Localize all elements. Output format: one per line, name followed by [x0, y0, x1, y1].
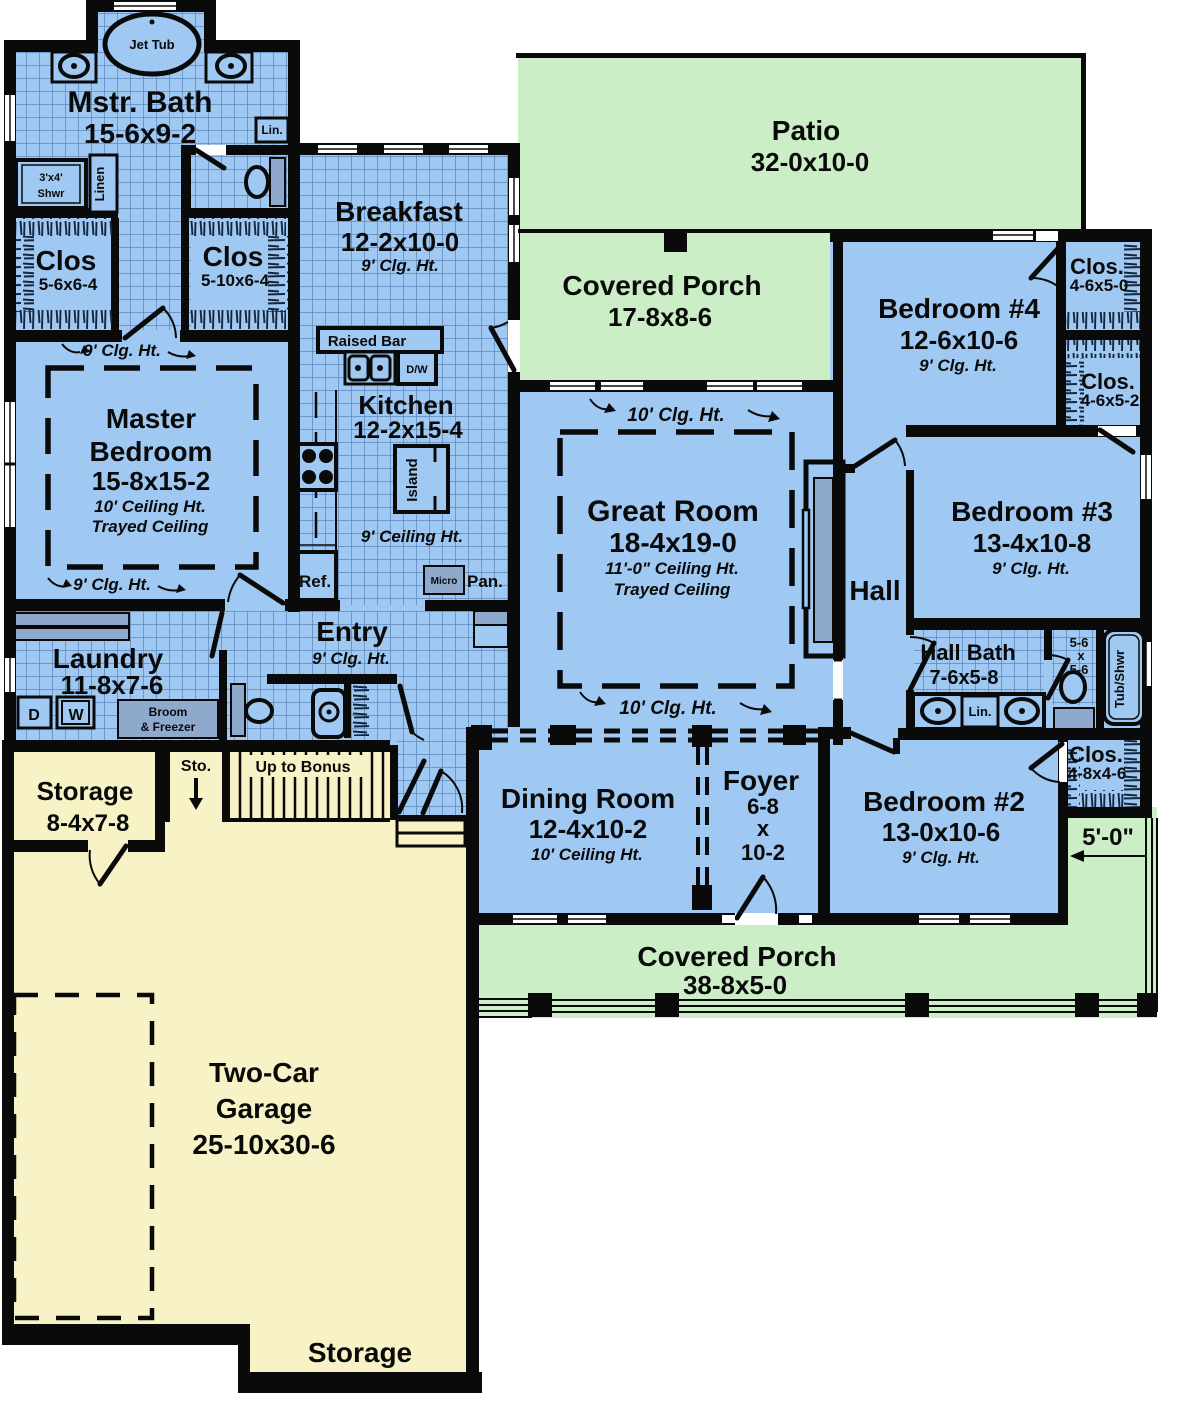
svg-text:D: D — [28, 707, 40, 724]
svg-text:11-8x7-6: 11-8x7-6 — [61, 670, 164, 700]
svg-text:Covered Porch: Covered Porch — [637, 941, 836, 972]
svg-text:Trayed Ceiling: Trayed Ceiling — [92, 517, 209, 536]
svg-text:7-6x5-8: 7-6x5-8 — [930, 667, 999, 689]
svg-text:38-8x5-0: 38-8x5-0 — [683, 970, 787, 1000]
svg-text:Kitchen: Kitchen — [358, 390, 453, 420]
svg-text:Storage: Storage — [37, 776, 134, 806]
svg-text:13-4x10-8: 13-4x10-8 — [973, 528, 1092, 558]
svg-text:11'-0" Ceiling Ht.: 11'-0" Ceiling Ht. — [605, 559, 739, 578]
svg-text:Lin.: Lin. — [261, 123, 282, 137]
svg-text:10' Ceiling Ht.: 10' Ceiling Ht. — [94, 497, 206, 516]
svg-text:Hall: Hall — [849, 575, 900, 606]
svg-text:25-10x30-6: 25-10x30-6 — [192, 1129, 335, 1160]
svg-text:5-6x6-4: 5-6x6-4 — [39, 275, 98, 294]
svg-text:13-0x10-6: 13-0x10-6 — [882, 817, 1001, 847]
svg-text:Entry: Entry — [316, 616, 388, 647]
svg-text:Micro: Micro — [431, 576, 458, 587]
svg-text:Storage: Storage — [308, 1337, 412, 1368]
svg-text:3'x4': 3'x4' — [39, 172, 63, 184]
svg-text:32-0x10-0: 32-0x10-0 — [751, 147, 870, 177]
svg-text:Great Room: Great Room — [587, 495, 759, 528]
svg-text:Garage: Garage — [216, 1093, 313, 1124]
svg-text:Clos: Clos — [36, 245, 97, 276]
svg-text:Dining Room: Dining Room — [501, 783, 675, 814]
svg-text:Breakfast: Breakfast — [335, 196, 463, 227]
svg-text:Bedroom #3: Bedroom #3 — [951, 496, 1113, 527]
svg-text:10-2: 10-2 — [741, 840, 785, 865]
svg-text:9' Clg. Ht.: 9' Clg. Ht. — [992, 559, 1070, 578]
svg-text:Ref.: Ref. — [299, 572, 331, 591]
svg-text:9' Clg. Ht.: 9' Clg. Ht. — [902, 848, 980, 867]
svg-text:10' Clg. Ht.: 10' Clg. Ht. — [619, 698, 716, 719]
svg-text:9' Ceiling Ht.: 9' Ceiling Ht. — [361, 527, 463, 546]
svg-text:Trayed Ceiling: Trayed Ceiling — [614, 580, 731, 599]
svg-text:D/W: D/W — [406, 364, 428, 376]
svg-text:Lin.: Lin. — [968, 704, 991, 719]
svg-text:Up to Bonus: Up to Bonus — [255, 759, 350, 776]
svg-text:Tub/Shwr: Tub/Shwr — [1112, 650, 1127, 708]
svg-text:8-4x7-8: 8-4x7-8 — [47, 810, 130, 837]
svg-text:Hall Bath: Hall Bath — [920, 640, 1015, 665]
svg-text:Covered Porch: Covered Porch — [562, 270, 761, 301]
svg-text:9' Clg. Ht.: 9' Clg. Ht. — [361, 256, 439, 275]
svg-text:Raised Bar: Raised Bar — [328, 333, 407, 350]
svg-text:Two-Car: Two-Car — [209, 1057, 319, 1088]
svg-text:Shwr: Shwr — [38, 188, 66, 200]
svg-text:Master: Master — [106, 403, 196, 434]
svg-text:Pan.: Pan. — [467, 572, 503, 591]
svg-text:5-10x6-4: 5-10x6-4 — [201, 271, 270, 290]
svg-text:9' Clg. Ht.: 9' Clg. Ht. — [919, 356, 997, 375]
svg-text:4-6x5-2: 4-6x5-2 — [1081, 391, 1140, 410]
svg-text:x: x — [757, 816, 770, 841]
svg-text:12-2x10-0: 12-2x10-0 — [341, 227, 460, 257]
svg-text:15-6x9-2: 15-6x9-2 — [84, 118, 196, 149]
svg-text:4-6x5-0: 4-6x5-0 — [1070, 276, 1129, 295]
svg-text:Sto.: Sto. — [181, 758, 211, 775]
svg-text:Bedroom: Bedroom — [90, 436, 213, 467]
svg-text:Broom: Broom — [149, 705, 188, 719]
svg-text:12-2x15-4: 12-2x15-4 — [353, 417, 463, 444]
svg-text:Bedroom #4: Bedroom #4 — [878, 293, 1040, 324]
svg-text:15-8x15-2: 15-8x15-2 — [92, 466, 211, 496]
svg-text:9' Clg. Ht.: 9' Clg. Ht. — [73, 575, 151, 594]
svg-text:5-6: 5-6 — [1070, 662, 1089, 677]
svg-text:18-4x19-0: 18-4x19-0 — [609, 527, 737, 558]
svg-text:17-8x8-6: 17-8x8-6 — [608, 302, 712, 332]
svg-text:Island: Island — [404, 458, 421, 501]
svg-text:Clos: Clos — [203, 241, 264, 272]
svg-text:W: W — [68, 707, 84, 724]
svg-text:Bedroom #2: Bedroom #2 — [863, 786, 1025, 817]
svg-text:12-6x10-6: 12-6x10-6 — [900, 325, 1019, 355]
svg-text:Jet Tub: Jet Tub — [129, 37, 174, 52]
svg-text:Patio: Patio — [772, 115, 840, 146]
svg-text:& Freezer: & Freezer — [141, 720, 196, 734]
svg-text:x: x — [1077, 648, 1085, 663]
svg-text:9' Clg. Ht.: 9' Clg. Ht. — [312, 649, 390, 668]
svg-text:9' Clg. Ht.: 9' Clg. Ht. — [83, 341, 161, 360]
svg-text:Mstr. Bath: Mstr. Bath — [67, 86, 212, 119]
svg-text:12-4x10-2: 12-4x10-2 — [529, 814, 648, 844]
svg-text:10' Clg. Ht.: 10' Clg. Ht. — [627, 405, 724, 426]
svg-text:5'-0": 5'-0" — [1082, 824, 1134, 851]
svg-text:4-8x4-6: 4-8x4-6 — [1068, 764, 1127, 783]
svg-text:Foyer: Foyer — [723, 765, 799, 796]
svg-text:Linen: Linen — [92, 167, 107, 202]
svg-text:10' Ceiling Ht.: 10' Ceiling Ht. — [531, 845, 643, 864]
